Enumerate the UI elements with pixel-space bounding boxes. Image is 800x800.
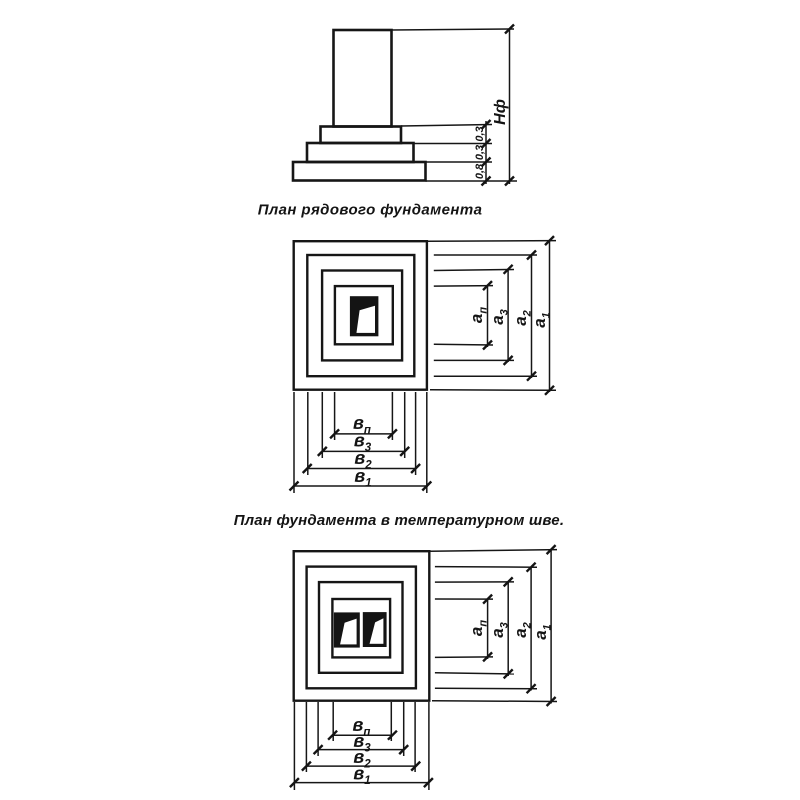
svg-text:0,3: 0,3 — [474, 126, 486, 141]
svg-text:ап: ап — [467, 307, 490, 323]
svg-text:а3: а3 — [488, 622, 511, 638]
svg-text:Нф: Нф — [492, 99, 509, 125]
svg-text:План фундамента в температурно: План фундамента в температурном шве. — [234, 512, 564, 529]
svg-text:План рядового фундамента: План рядового фундамента — [258, 202, 483, 219]
svg-text:а1: а1 — [531, 624, 554, 640]
svg-text:ап: ап — [467, 620, 490, 636]
svg-text:а3: а3 — [488, 309, 511, 325]
svg-text:0,3: 0,3 — [474, 145, 486, 160]
svg-text:0,8: 0,8 — [474, 163, 486, 179]
